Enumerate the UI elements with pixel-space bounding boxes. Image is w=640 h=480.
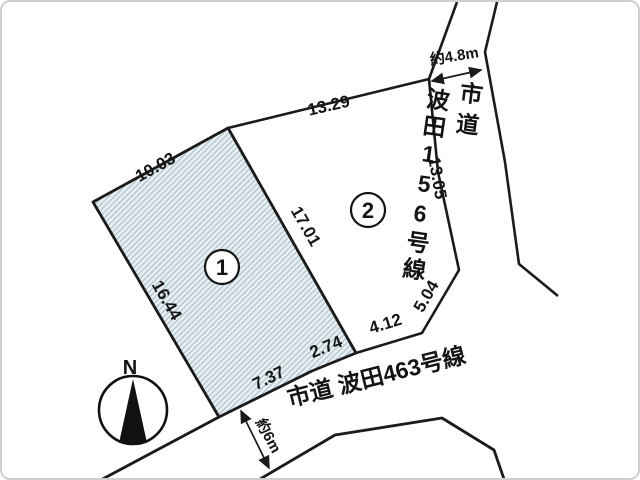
plot-2-number-badge: 2 <box>351 193 385 227</box>
road-156-right-boundary <box>485 2 558 296</box>
diagram-canvas: 10.03 13.29 17.01 16.44 13.05 5.04 4.12 … <box>2 2 640 480</box>
road-156-width-label: 約4.8m <box>429 43 480 68</box>
north-compass: N <box>99 357 167 444</box>
road-463-near-boundary <box>97 417 219 480</box>
road-463-width-label: 約6m <box>252 415 285 456</box>
plot-1-number: 1 <box>216 255 228 280</box>
compass-needle-icon <box>119 379 147 443</box>
road-463-far-boundary <box>255 418 505 480</box>
land-plot-diagram: 10.03 13.29 17.01 16.44 13.05 5.04 4.12 … <box>0 0 640 480</box>
road-156-name-column-right: 市道 <box>451 80 481 144</box>
road-156-width-arrow <box>432 70 481 81</box>
plot-2-number: 2 <box>362 198 374 223</box>
plot-1-number-badge: 1 <box>205 250 239 284</box>
